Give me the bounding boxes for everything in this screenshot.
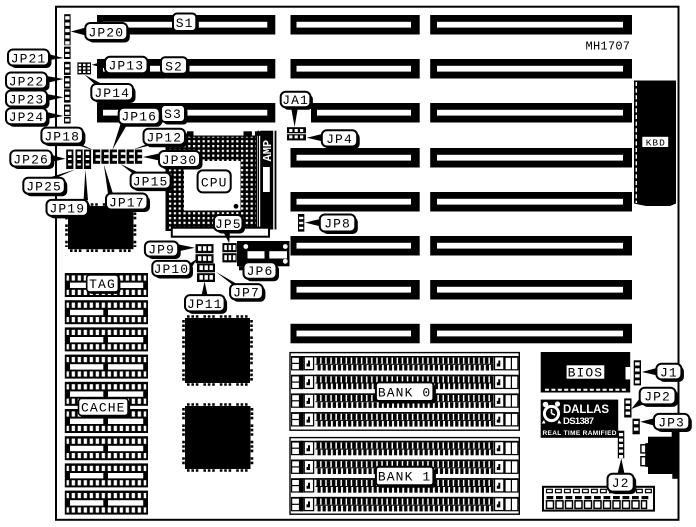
svg-text:JP19: JP19 [49,202,85,217]
svg-text:JP22: JP22 [9,74,45,89]
svg-text:JP25: JP25 [26,180,62,195]
svg-text:S3: S3 [164,107,182,122]
svg-text:JP30: JP30 [162,153,198,168]
svg-text:CPU: CPU [201,175,228,190]
svg-text:JP8: JP8 [324,217,351,232]
svg-text:JP26: JP26 [13,152,49,167]
svg-text:JP13: JP13 [108,59,144,74]
svg-text:S1: S1 [176,16,194,31]
svg-text:JP10: JP10 [154,262,190,277]
svg-text:J2: J2 [612,476,630,491]
svg-text:DALLAS: DALLAS [563,404,609,416]
svg-text:JP23: JP23 [9,92,45,107]
svg-text:JP15: JP15 [133,174,169,189]
svg-text:JP6: JP6 [247,264,274,279]
svg-text:JA1: JA1 [282,93,309,108]
svg-text:J1: J1 [660,365,678,380]
svg-text:MH1707: MH1707 [586,40,631,54]
svg-text:JP5: JP5 [215,217,242,232]
svg-text:JP11: JP11 [187,297,223,312]
svg-text:JP20: JP20 [88,25,124,40]
svg-text:JP17: JP17 [109,195,145,210]
svg-text:JP24: JP24 [9,110,45,125]
svg-text:CACHE: CACHE [81,401,126,416]
svg-text:DS1387: DS1387 [563,416,594,427]
svg-text:JP14: JP14 [94,86,130,101]
svg-text:JP21: JP21 [11,51,47,66]
svg-text:AMP: AMP [261,140,275,162]
svg-text:TAG: TAG [89,277,116,292]
svg-text:JP16: JP16 [121,110,157,125]
svg-text:JP9: JP9 [148,243,175,258]
svg-text:JP2: JP2 [644,390,671,405]
svg-text:KBD: KBD [646,138,666,149]
svg-text:JP3: JP3 [658,415,685,430]
svg-text:JP4: JP4 [326,132,353,147]
svg-text:S2: S2 [165,59,183,74]
svg-text:JP18: JP18 [44,129,80,144]
svg-text:JP12: JP12 [146,131,182,146]
svg-text:JP7: JP7 [233,285,260,300]
svg-text:BIOS: BIOS [568,366,604,381]
svg-text:BANK 0: BANK 0 [378,385,431,400]
svg-text:BANK 1: BANK 1 [378,470,431,485]
svg-text:REAL TIME RAMIFIED: REAL TIME RAMIFIED [543,430,617,437]
